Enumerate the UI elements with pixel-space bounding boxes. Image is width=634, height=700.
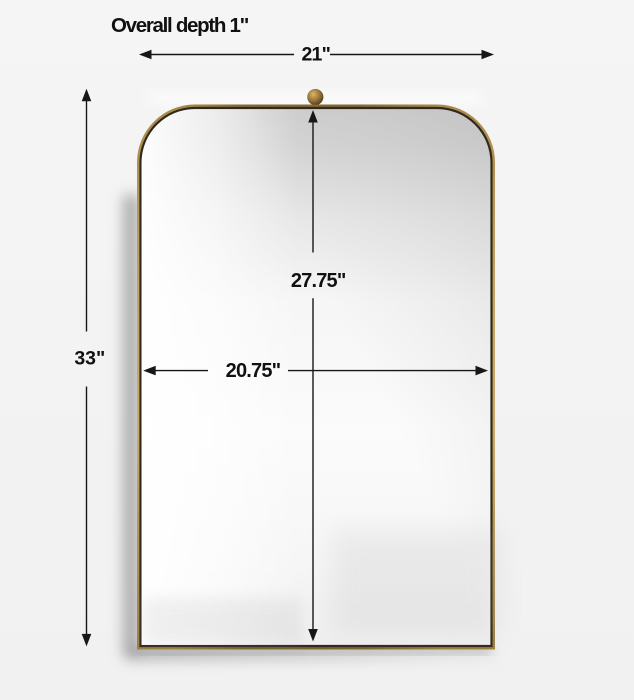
svg-text:27.75": 27.75" [291, 270, 346, 292]
svg-text:21": 21" [302, 44, 331, 66]
svg-text:20.75": 20.75" [226, 360, 281, 382]
svg-text:Overall depth 1": Overall depth 1" [111, 14, 249, 37]
svg-text:33": 33" [74, 348, 105, 370]
